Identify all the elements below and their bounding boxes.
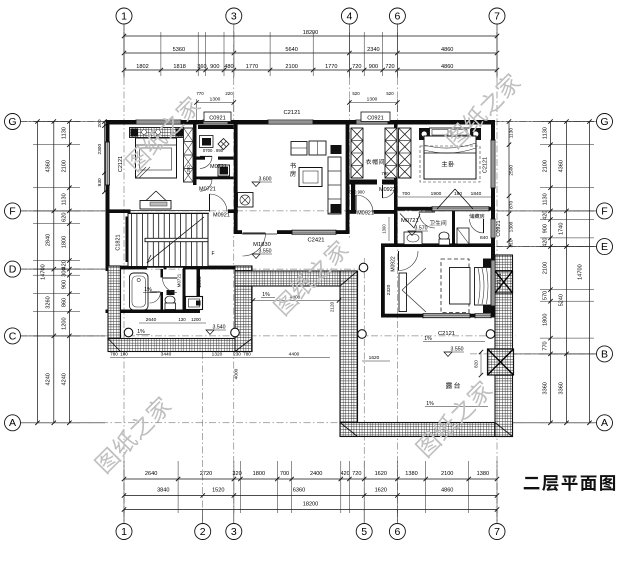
svg-text:6: 6 bbox=[394, 526, 400, 538]
svg-text:3.540: 3.540 bbox=[213, 325, 226, 331]
svg-text:3.600: 3.600 bbox=[259, 177, 272, 183]
svg-text:C2121: C2121 bbox=[118, 156, 124, 172]
svg-text:2100: 2100 bbox=[441, 471, 453, 477]
svg-text:1300: 1300 bbox=[382, 224, 387, 234]
svg-text:M0721: M0721 bbox=[199, 187, 216, 193]
svg-text:C0921: C0921 bbox=[209, 115, 225, 121]
svg-text:4240: 4240 bbox=[62, 373, 68, 385]
svg-text:2: 2 bbox=[200, 526, 206, 538]
svg-text:6360: 6360 bbox=[293, 488, 305, 494]
svg-text:B: B bbox=[601, 348, 608, 360]
svg-text:770: 770 bbox=[196, 91, 204, 96]
svg-text:14700: 14700 bbox=[41, 264, 47, 280]
svg-text:2500: 2500 bbox=[509, 165, 515, 176]
svg-text:5640: 5640 bbox=[285, 47, 297, 53]
svg-text:200: 200 bbox=[97, 119, 103, 127]
svg-text:C2421: C2421 bbox=[307, 238, 324, 244]
svg-text:2400: 2400 bbox=[310, 471, 322, 477]
svg-text:930: 930 bbox=[97, 178, 103, 186]
svg-text:860: 860 bbox=[62, 298, 68, 307]
svg-text:1%: 1% bbox=[137, 329, 145, 335]
svg-text:1802: 1802 bbox=[136, 64, 148, 70]
svg-text:C1821: C1821 bbox=[116, 234, 122, 250]
svg-text:1130: 1130 bbox=[543, 127, 549, 139]
svg-text:1300: 1300 bbox=[509, 221, 515, 232]
svg-text:3: 3 bbox=[231, 526, 237, 538]
svg-text:5360: 5360 bbox=[173, 47, 185, 53]
svg-text:7: 7 bbox=[494, 10, 500, 22]
svg-text:14700: 14700 bbox=[578, 264, 584, 280]
svg-text:M0922: M0922 bbox=[391, 256, 397, 272]
svg-text:C2121: C2121 bbox=[438, 331, 455, 337]
svg-text:420: 420 bbox=[340, 471, 349, 477]
svg-text:900: 900 bbox=[210, 64, 219, 70]
svg-text:2840: 2840 bbox=[46, 234, 52, 246]
svg-text:1%: 1% bbox=[144, 287, 152, 293]
svg-text:4860: 4860 bbox=[441, 47, 453, 53]
svg-text:3360: 3360 bbox=[543, 382, 549, 394]
svg-text:2720: 2720 bbox=[200, 471, 212, 477]
svg-text:780: 780 bbox=[110, 352, 118, 357]
svg-text:310: 310 bbox=[509, 239, 515, 247]
svg-text:480: 480 bbox=[224, 64, 233, 70]
svg-text:520: 520 bbox=[352, 91, 360, 96]
svg-text:780: 780 bbox=[243, 352, 251, 357]
svg-text:1%: 1% bbox=[424, 336, 432, 342]
svg-text:4860: 4860 bbox=[441, 64, 453, 70]
svg-text:1130: 1130 bbox=[543, 193, 549, 205]
svg-text:3360: 3360 bbox=[559, 382, 565, 394]
svg-text:C2121: C2121 bbox=[283, 110, 300, 116]
svg-text:1380: 1380 bbox=[405, 471, 417, 477]
svg-text:C2121: C2121 bbox=[497, 273, 503, 289]
svg-text:1200: 1200 bbox=[191, 317, 201, 322]
svg-text:130: 130 bbox=[178, 317, 186, 322]
svg-text:100: 100 bbox=[120, 352, 128, 357]
svg-text:4360: 4360 bbox=[559, 160, 565, 172]
svg-text:M0721: M0721 bbox=[177, 273, 182, 287]
svg-text:1%: 1% bbox=[262, 292, 270, 298]
svg-text:M1830: M1830 bbox=[253, 242, 271, 248]
svg-text:840: 840 bbox=[480, 235, 488, 241]
svg-text:1740: 1740 bbox=[559, 222, 565, 234]
svg-text:1300: 1300 bbox=[210, 97, 221, 103]
svg-text:4: 4 bbox=[346, 10, 352, 22]
svg-text:1620: 1620 bbox=[375, 488, 387, 494]
svg-text:M0921: M0921 bbox=[357, 211, 374, 217]
svg-text:770: 770 bbox=[543, 341, 549, 350]
svg-text:2300: 2300 bbox=[97, 144, 103, 155]
svg-text:1818: 1818 bbox=[173, 64, 185, 70]
svg-text:700: 700 bbox=[280, 471, 289, 477]
svg-text:2100: 2100 bbox=[543, 160, 549, 172]
svg-text:3840: 3840 bbox=[157, 488, 169, 494]
svg-text:1: 1 bbox=[121, 526, 127, 538]
svg-text:220: 220 bbox=[225, 91, 233, 96]
svg-text:3440: 3440 bbox=[161, 352, 172, 358]
svg-text:1620: 1620 bbox=[375, 471, 387, 477]
svg-text:720: 720 bbox=[352, 64, 361, 70]
svg-text:1520: 1520 bbox=[212, 488, 224, 494]
svg-text:F: F bbox=[211, 251, 214, 257]
svg-text:2320: 2320 bbox=[386, 284, 392, 295]
svg-text:1130: 1130 bbox=[62, 193, 68, 205]
svg-text:1%: 1% bbox=[426, 401, 434, 407]
svg-text:720: 720 bbox=[352, 471, 361, 477]
svg-text:A: A bbox=[9, 417, 16, 429]
svg-text:2640: 2640 bbox=[145, 471, 157, 477]
svg-text:7: 7 bbox=[494, 526, 500, 538]
svg-text:1770: 1770 bbox=[325, 64, 337, 70]
svg-text:4000: 4000 bbox=[234, 368, 240, 379]
svg-text:E: E bbox=[601, 241, 608, 253]
svg-text:18200: 18200 bbox=[303, 30, 319, 36]
svg-text:2120: 2120 bbox=[330, 301, 335, 312]
svg-text:C: C bbox=[9, 330, 17, 342]
svg-text:4240: 4240 bbox=[46, 373, 52, 385]
svg-text:2100: 2100 bbox=[543, 262, 549, 274]
svg-text:D: D bbox=[9, 264, 17, 276]
svg-text:420: 420 bbox=[543, 238, 549, 247]
svg-text:6: 6 bbox=[394, 10, 400, 22]
svg-text:360: 360 bbox=[197, 64, 206, 70]
svg-text:1320: 1320 bbox=[212, 352, 223, 358]
svg-text:3.550: 3.550 bbox=[259, 249, 272, 255]
svg-text:M0721: M0721 bbox=[401, 218, 419, 224]
svg-text:1130: 1130 bbox=[509, 128, 515, 139]
svg-text:M0922: M0922 bbox=[379, 187, 396, 193]
svg-text:1280: 1280 bbox=[186, 165, 191, 175]
svg-text:230: 230 bbox=[233, 352, 241, 357]
svg-text:1380: 1380 bbox=[477, 471, 489, 477]
svg-text:A: A bbox=[601, 417, 608, 429]
svg-text:G: G bbox=[8, 116, 16, 128]
svg-text:2100: 2100 bbox=[285, 64, 297, 70]
svg-text:1840: 1840 bbox=[471, 191, 482, 197]
svg-text:1770: 1770 bbox=[246, 64, 258, 70]
svg-text:5240: 5240 bbox=[559, 294, 565, 306]
svg-text:18200: 18200 bbox=[303, 502, 319, 508]
svg-text:1900: 1900 bbox=[431, 191, 442, 197]
svg-text:C0921: C0921 bbox=[496, 220, 502, 236]
svg-text:720: 720 bbox=[385, 64, 394, 70]
svg-text:2640: 2640 bbox=[146, 317, 157, 323]
svg-text:3.570: 3.570 bbox=[415, 226, 428, 232]
svg-text:1300: 1300 bbox=[367, 97, 378, 103]
svg-text:700: 700 bbox=[382, 171, 390, 176]
svg-text:2100: 2100 bbox=[62, 160, 68, 172]
svg-text:M0921: M0921 bbox=[213, 213, 230, 219]
svg-text:570: 570 bbox=[543, 291, 549, 300]
svg-text:3: 3 bbox=[231, 10, 237, 22]
svg-text:870: 870 bbox=[509, 200, 515, 208]
svg-text:F: F bbox=[9, 205, 15, 217]
svg-text:900: 900 bbox=[62, 280, 68, 289]
svg-text:G: G bbox=[600, 116, 608, 128]
svg-text:520: 520 bbox=[386, 91, 394, 96]
svg-text:900: 900 bbox=[543, 224, 549, 233]
svg-text:C0921: C0921 bbox=[367, 115, 383, 121]
svg-text:3.550: 3.550 bbox=[451, 347, 464, 353]
svg-text:1: 1 bbox=[121, 10, 127, 22]
svg-text:F: F bbox=[601, 205, 607, 217]
svg-text:180: 180 bbox=[454, 191, 462, 197]
svg-text:1800: 1800 bbox=[253, 471, 265, 477]
svg-text:3260: 3260 bbox=[46, 296, 52, 308]
svg-text:1130: 1130 bbox=[62, 127, 68, 139]
svg-text:700: 700 bbox=[402, 191, 410, 197]
svg-text:5: 5 bbox=[361, 526, 367, 538]
svg-text:300.900: 300.900 bbox=[349, 190, 365, 195]
svg-text:1200: 1200 bbox=[62, 317, 68, 329]
svg-text:M0721: M0721 bbox=[210, 164, 227, 170]
svg-text:1200: 1200 bbox=[197, 276, 203, 288]
svg-text:4860: 4860 bbox=[441, 488, 453, 494]
svg-text:4400: 4400 bbox=[289, 352, 300, 358]
svg-text:420: 420 bbox=[543, 211, 549, 220]
svg-text:4360: 4360 bbox=[46, 160, 52, 172]
svg-text:1620: 1620 bbox=[369, 355, 380, 361]
svg-text:1800: 1800 bbox=[62, 236, 68, 248]
svg-text:900: 900 bbox=[369, 64, 378, 70]
svg-text:0700 . 890: 0700 . 890 bbox=[203, 148, 224, 153]
svg-text:1800: 1800 bbox=[543, 313, 549, 325]
svg-text:820: 820 bbox=[474, 360, 479, 368]
svg-text:C2121: C2121 bbox=[483, 157, 489, 173]
svg-text:620: 620 bbox=[62, 213, 68, 222]
svg-text:2340: 2340 bbox=[367, 47, 379, 53]
